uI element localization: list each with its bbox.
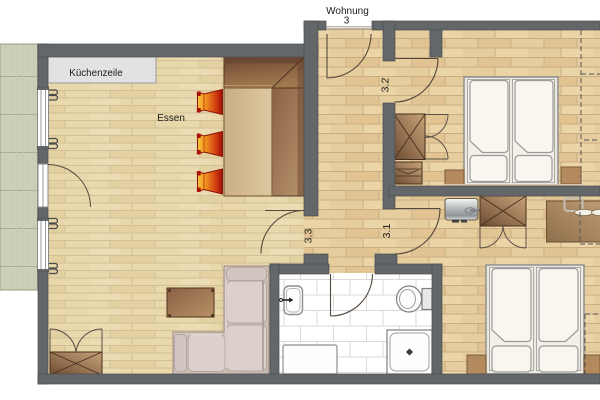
svg-text:3: 3 — [344, 16, 350, 27]
svg-text:3.2: 3.2 — [380, 78, 392, 93]
svg-text:3.3: 3.3 — [303, 229, 315, 244]
svg-text:Essen: Essen — [157, 113, 185, 124]
svg-text:Küchenzeile: Küchenzeile — [69, 68, 123, 79]
svg-text:3.1: 3.1 — [381, 224, 393, 239]
